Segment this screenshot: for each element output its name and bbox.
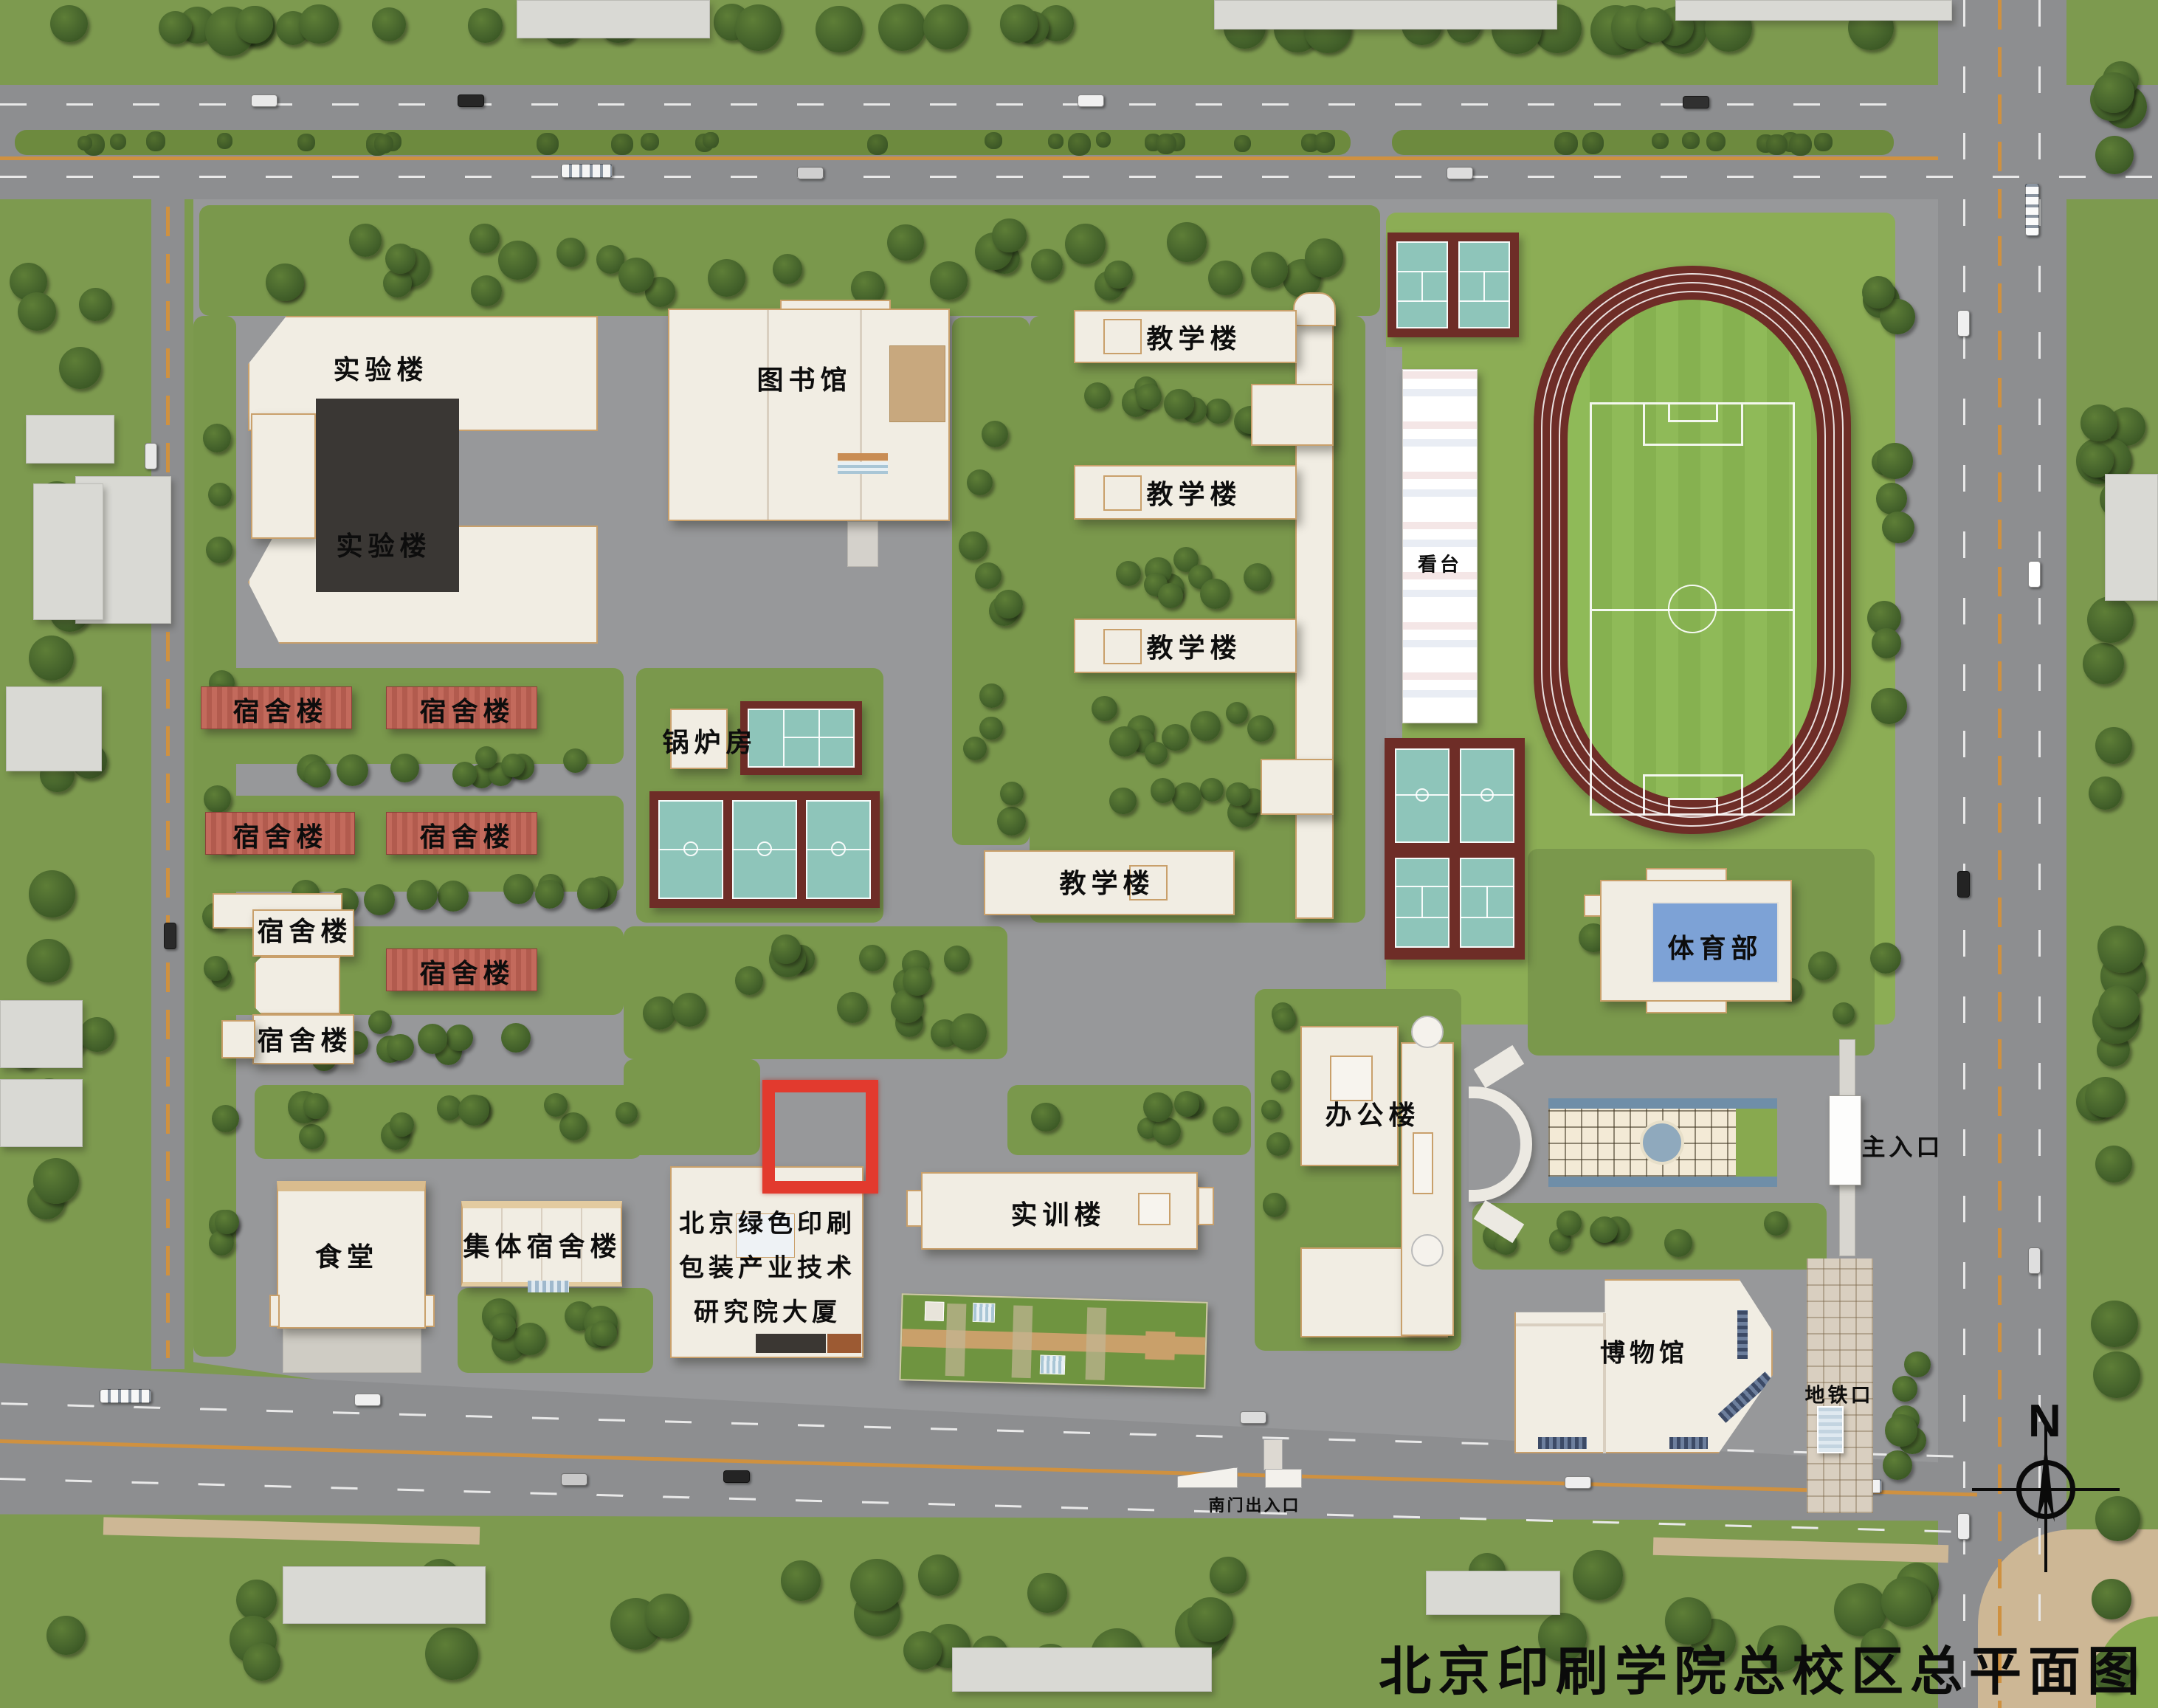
tree <box>1764 1211 1788 1236</box>
tree <box>59 347 101 389</box>
tree <box>303 1093 328 1118</box>
tree <box>80 1017 114 1052</box>
bus <box>100 1389 151 1403</box>
tree <box>645 1594 689 1638</box>
tree <box>577 878 608 909</box>
tree <box>18 292 57 331</box>
tree <box>501 754 525 777</box>
offsite-building <box>952 1647 1212 1692</box>
tree <box>1136 384 1162 410</box>
car <box>1565 1476 1591 1489</box>
tree <box>837 992 868 1023</box>
south-gate-booth <box>1264 1439 1283 1470</box>
label-laboratory-lower: 实验楼 <box>336 525 431 563</box>
car <box>164 923 176 949</box>
car <box>145 443 157 469</box>
tree <box>407 880 437 910</box>
label-office-building: 办公楼 <box>1325 1094 1420 1132</box>
label-south-gate: 南门出入口 <box>1208 1492 1300 1516</box>
south-gate-booth <box>1265 1469 1302 1488</box>
tree <box>816 6 862 52</box>
tree <box>2098 927 2144 973</box>
tree <box>469 224 500 254</box>
hedge-shrub <box>985 132 1002 149</box>
tree <box>982 421 1008 447</box>
tree <box>372 7 406 41</box>
car <box>2028 1247 2041 1274</box>
tree <box>1174 1091 1199 1116</box>
tree <box>944 946 971 972</box>
tree <box>2093 1351 2140 1399</box>
laboratory-west-wing <box>251 413 316 539</box>
highlight-red-square <box>762 1080 878 1194</box>
label-teaching-3: 教学楼 <box>1146 627 1241 665</box>
tree <box>1881 1577 1931 1627</box>
car <box>1078 94 1104 107</box>
offsite-building <box>2105 474 2158 601</box>
car <box>2028 561 2041 588</box>
tree <box>1885 1414 1917 1447</box>
tree <box>2095 1146 2132 1182</box>
tree <box>159 11 192 44</box>
tree <box>1027 1573 1066 1612</box>
tree <box>1205 399 1230 424</box>
hedge-shrub <box>1096 132 1111 148</box>
label-dormitory-7: 宿舍楼 <box>257 1019 352 1058</box>
sidewalk <box>1653 1537 1948 1563</box>
bus <box>561 164 613 178</box>
tree <box>616 1102 638 1124</box>
tree <box>950 1013 987 1050</box>
tree <box>975 562 1002 590</box>
tree <box>212 1105 239 1132</box>
compass-north-label: N <box>2028 1395 2061 1447</box>
tree <box>544 1093 568 1117</box>
hedge-shrub <box>867 134 888 155</box>
court-block-north <box>740 701 862 775</box>
tree <box>1305 238 1343 277</box>
tennis-courts-north <box>1387 233 1519 337</box>
tree <box>1200 778 1224 802</box>
tree <box>781 1560 821 1601</box>
offsite-building <box>1675 0 1952 21</box>
bus <box>2025 183 2039 236</box>
basketball-courts <box>649 791 880 908</box>
tree <box>1158 583 1183 608</box>
tree <box>2083 643 2124 684</box>
label-training-building: 实训楼 <box>1010 1194 1106 1232</box>
car <box>251 94 277 107</box>
tree <box>2080 443 2114 478</box>
teaching-spine-annex <box>1261 759 1334 815</box>
hedge-shrub <box>297 134 315 151</box>
tree <box>1031 1103 1060 1132</box>
tree <box>773 254 803 284</box>
tree <box>243 1643 280 1681</box>
tree <box>2089 776 2122 810</box>
car <box>561 1473 587 1486</box>
label-canteen: 食堂 <box>315 1236 379 1274</box>
hedge-shrub <box>1554 132 1578 156</box>
tree <box>1213 1106 1239 1133</box>
label-boiler-room: 锅炉房 <box>662 721 757 760</box>
tree <box>1109 788 1136 814</box>
tree <box>979 717 1002 740</box>
grandstand-building <box>1402 369 1478 723</box>
tree <box>437 1095 461 1120</box>
tree <box>963 737 987 760</box>
tree <box>46 1616 86 1655</box>
hedge-shrub <box>1582 132 1604 154</box>
garden-plaza <box>1548 1098 1777 1187</box>
car <box>354 1394 381 1406</box>
hedge-shrub <box>374 134 393 154</box>
hedge-shrub <box>703 132 719 148</box>
hedge-shrub <box>1048 134 1064 149</box>
label-dormitory-1: 宿舍楼 <box>232 690 328 729</box>
tree <box>1273 1008 1295 1030</box>
center-line <box>0 156 1938 160</box>
green-roof-building <box>899 1293 1207 1389</box>
tree <box>2087 596 2134 643</box>
label-pe-department: 体育部 <box>1667 927 1762 965</box>
tree <box>2091 1301 2138 1348</box>
label-teaching-1: 教学楼 <box>1146 317 1241 356</box>
tree <box>1876 483 1908 514</box>
offsite-building <box>33 483 103 620</box>
tree <box>503 874 534 904</box>
label-teaching-2: 教学楼 <box>1146 473 1241 512</box>
tree <box>1104 261 1133 289</box>
tree <box>208 483 232 506</box>
tree <box>771 934 800 963</box>
tree <box>33 1158 79 1204</box>
tree <box>1031 249 1063 280</box>
tree <box>204 785 231 813</box>
tree <box>1882 512 1914 543</box>
car <box>458 94 484 107</box>
tree <box>563 748 587 773</box>
tree <box>50 5 88 43</box>
tree <box>887 224 923 261</box>
tree <box>1164 389 1194 419</box>
tree <box>918 1554 959 1596</box>
campus-map: N 实验楼 实验楼 图书馆 教学楼 教学楼 教学楼 教学楼 锅炉房 宿舍楼 宿舍… <box>0 0 2158 1708</box>
car <box>723 1470 750 1483</box>
tree <box>1808 951 1837 980</box>
car <box>1957 310 1970 337</box>
tree <box>1872 628 1901 658</box>
tree <box>2093 72 2134 114</box>
tree <box>1251 252 1288 289</box>
hedge-shrub <box>1706 132 1726 152</box>
tree <box>368 1010 392 1034</box>
tree <box>458 1095 489 1126</box>
hedge-shrub <box>537 133 559 155</box>
tree <box>299 1124 324 1149</box>
tree <box>29 636 74 681</box>
label-dormitory-6: 宿舍楼 <box>419 952 514 991</box>
tree <box>1092 696 1117 722</box>
label-subway-exit: 地铁口 <box>1805 1380 1874 1408</box>
map-title: 北京印刷学院总校区总平面图 <box>1379 1630 2146 1705</box>
label-collective-dormitory: 集体宿舍楼 <box>463 1225 621 1264</box>
tree <box>390 1112 414 1137</box>
hedge-shrub <box>1766 134 1787 155</box>
label-dormitory-2: 宿舍楼 <box>419 690 514 729</box>
tree <box>2098 985 2140 1027</box>
tree <box>385 244 416 274</box>
grandstand-apron <box>1386 347 1402 745</box>
hedge-shrub <box>110 134 126 150</box>
tree <box>1143 1092 1173 1122</box>
tree <box>1271 1070 1291 1090</box>
car <box>1957 871 1970 898</box>
tree <box>387 1034 413 1061</box>
tree <box>204 956 228 980</box>
tree <box>1263 1193 1286 1216</box>
hedge-shrub <box>1156 134 1177 155</box>
car <box>1240 1411 1266 1424</box>
lane-marking <box>0 176 2158 178</box>
tree <box>438 881 469 912</box>
tree <box>1167 222 1206 261</box>
tree <box>859 945 886 971</box>
tree <box>1226 782 1250 807</box>
label-museum: 博物馆 <box>1600 1333 1689 1369</box>
tree <box>1261 1100 1281 1120</box>
tree <box>923 4 968 49</box>
hedge-shrub <box>1068 133 1091 156</box>
library-entrance-stem <box>847 521 878 567</box>
tree <box>735 4 782 51</box>
teaching-spine-annex <box>1251 384 1334 446</box>
tree <box>79 288 112 321</box>
tree <box>559 1112 587 1140</box>
tree <box>1000 4 1038 43</box>
hedge-shrub <box>1314 132 1335 153</box>
tree <box>364 884 395 915</box>
tree <box>471 275 502 306</box>
hedge-shrub <box>77 136 92 151</box>
tree <box>390 754 419 782</box>
car <box>1683 96 1709 109</box>
tree <box>425 1628 478 1680</box>
hedge-shrub <box>1652 133 1669 150</box>
office-corridor <box>1401 1042 1454 1336</box>
hedge-shrub <box>1234 135 1251 152</box>
tree <box>468 8 503 43</box>
tree <box>1151 778 1175 802</box>
hedge-shrub <box>217 133 233 149</box>
tree <box>1172 782 1202 812</box>
label-teaching-4: 教学楼 <box>1059 862 1154 901</box>
dormitory-white-lower-wing <box>221 1020 255 1058</box>
car <box>797 167 824 179</box>
tree <box>994 590 1023 619</box>
office-pavilion <box>1411 1234 1444 1267</box>
compass: N <box>1963 1395 2133 1580</box>
tree <box>29 870 76 917</box>
tree <box>903 966 932 996</box>
tree <box>2085 1077 2126 1118</box>
offsite-building <box>6 686 102 771</box>
tree <box>590 1320 616 1346</box>
tree <box>1877 443 1913 479</box>
label-library: 图书馆 <box>756 359 852 397</box>
dormitory-white-middle <box>255 957 340 1014</box>
tree <box>27 939 71 983</box>
hedge-shrub <box>1814 133 1833 151</box>
courts-south-enclosure <box>1385 738 1525 960</box>
car <box>1447 167 1473 179</box>
tree <box>979 683 1004 708</box>
tree <box>452 762 477 786</box>
label-laboratory-upper: 实验楼 <box>333 348 428 387</box>
tree <box>2095 727 2132 764</box>
tree <box>418 1024 447 1053</box>
offsite-building <box>517 0 710 38</box>
tree <box>1664 1229 1692 1257</box>
tree <box>236 1580 277 1620</box>
tree <box>446 1025 472 1051</box>
office-pavilion <box>1411 1016 1444 1048</box>
tree <box>1871 688 1907 724</box>
tree <box>997 807 1026 836</box>
tree <box>1109 726 1140 757</box>
tree <box>299 4 339 44</box>
label-grandstand: 看台 <box>1418 550 1462 577</box>
tree <box>735 966 764 995</box>
library-building <box>668 309 950 521</box>
center-line <box>166 207 170 1358</box>
hedge-shrub <box>641 133 658 151</box>
tree <box>235 6 273 44</box>
label-dormitory-5: 宿舍楼 <box>257 910 352 948</box>
lane-marking <box>0 103 1919 106</box>
tree <box>1116 561 1141 586</box>
tree <box>1883 1450 1912 1480</box>
tree <box>1187 1597 1233 1643</box>
tree <box>1573 1550 1623 1600</box>
offsite-building <box>0 1000 83 1068</box>
tree <box>1208 261 1244 296</box>
label-dormitory-4: 宿舍楼 <box>419 816 514 854</box>
tree <box>266 264 303 301</box>
tree <box>967 469 993 495</box>
tree <box>930 261 968 300</box>
subway-entrance-box <box>1817 1406 1844 1453</box>
tree <box>672 993 706 1027</box>
label-main-entrance: 主入口 <box>1861 1129 1943 1163</box>
offsite-building <box>26 415 114 464</box>
label-dormitory-3: 宿舍楼 <box>232 816 328 854</box>
canteen-terrace <box>283 1329 421 1373</box>
sidewalk <box>103 1517 480 1544</box>
tree <box>992 218 1026 252</box>
running-track <box>1534 266 1851 834</box>
tree <box>1145 742 1168 765</box>
tree <box>1892 1376 1917 1401</box>
tree <box>1200 579 1230 609</box>
offsite-building <box>283 1566 486 1624</box>
offsite-building <box>1426 1571 1560 1615</box>
tree <box>618 258 654 293</box>
tree <box>556 238 586 267</box>
tree <box>850 1559 903 1612</box>
main-gate-building <box>1829 1095 1861 1185</box>
tree <box>1000 782 1024 805</box>
tree <box>349 224 382 257</box>
football-pitch <box>1590 402 1795 816</box>
hedge-shrub <box>611 134 632 155</box>
tree <box>1591 1216 1618 1243</box>
tree <box>1244 563 1272 591</box>
lawn-group-dorm-south <box>458 1288 653 1373</box>
tree <box>304 761 331 788</box>
tree <box>2081 404 2117 441</box>
tree <box>878 4 925 51</box>
tree <box>206 537 232 563</box>
offsite-building <box>1214 0 1557 30</box>
hedge-shrub <box>1789 134 1812 156</box>
tree <box>1904 1351 1931 1378</box>
lawn-central-band2 <box>624 1059 760 1155</box>
offsite-building <box>0 1079 83 1147</box>
hedge-shrub <box>146 131 166 151</box>
hedge-shrub <box>1682 132 1700 150</box>
tree <box>959 531 987 559</box>
teaching-spine-knob <box>1293 292 1336 326</box>
tree <box>535 880 564 909</box>
label-research-institute: 北京绿色印刷 包装产业技术 研究院大厦 <box>679 1202 856 1335</box>
tree <box>1210 1557 1247 1594</box>
